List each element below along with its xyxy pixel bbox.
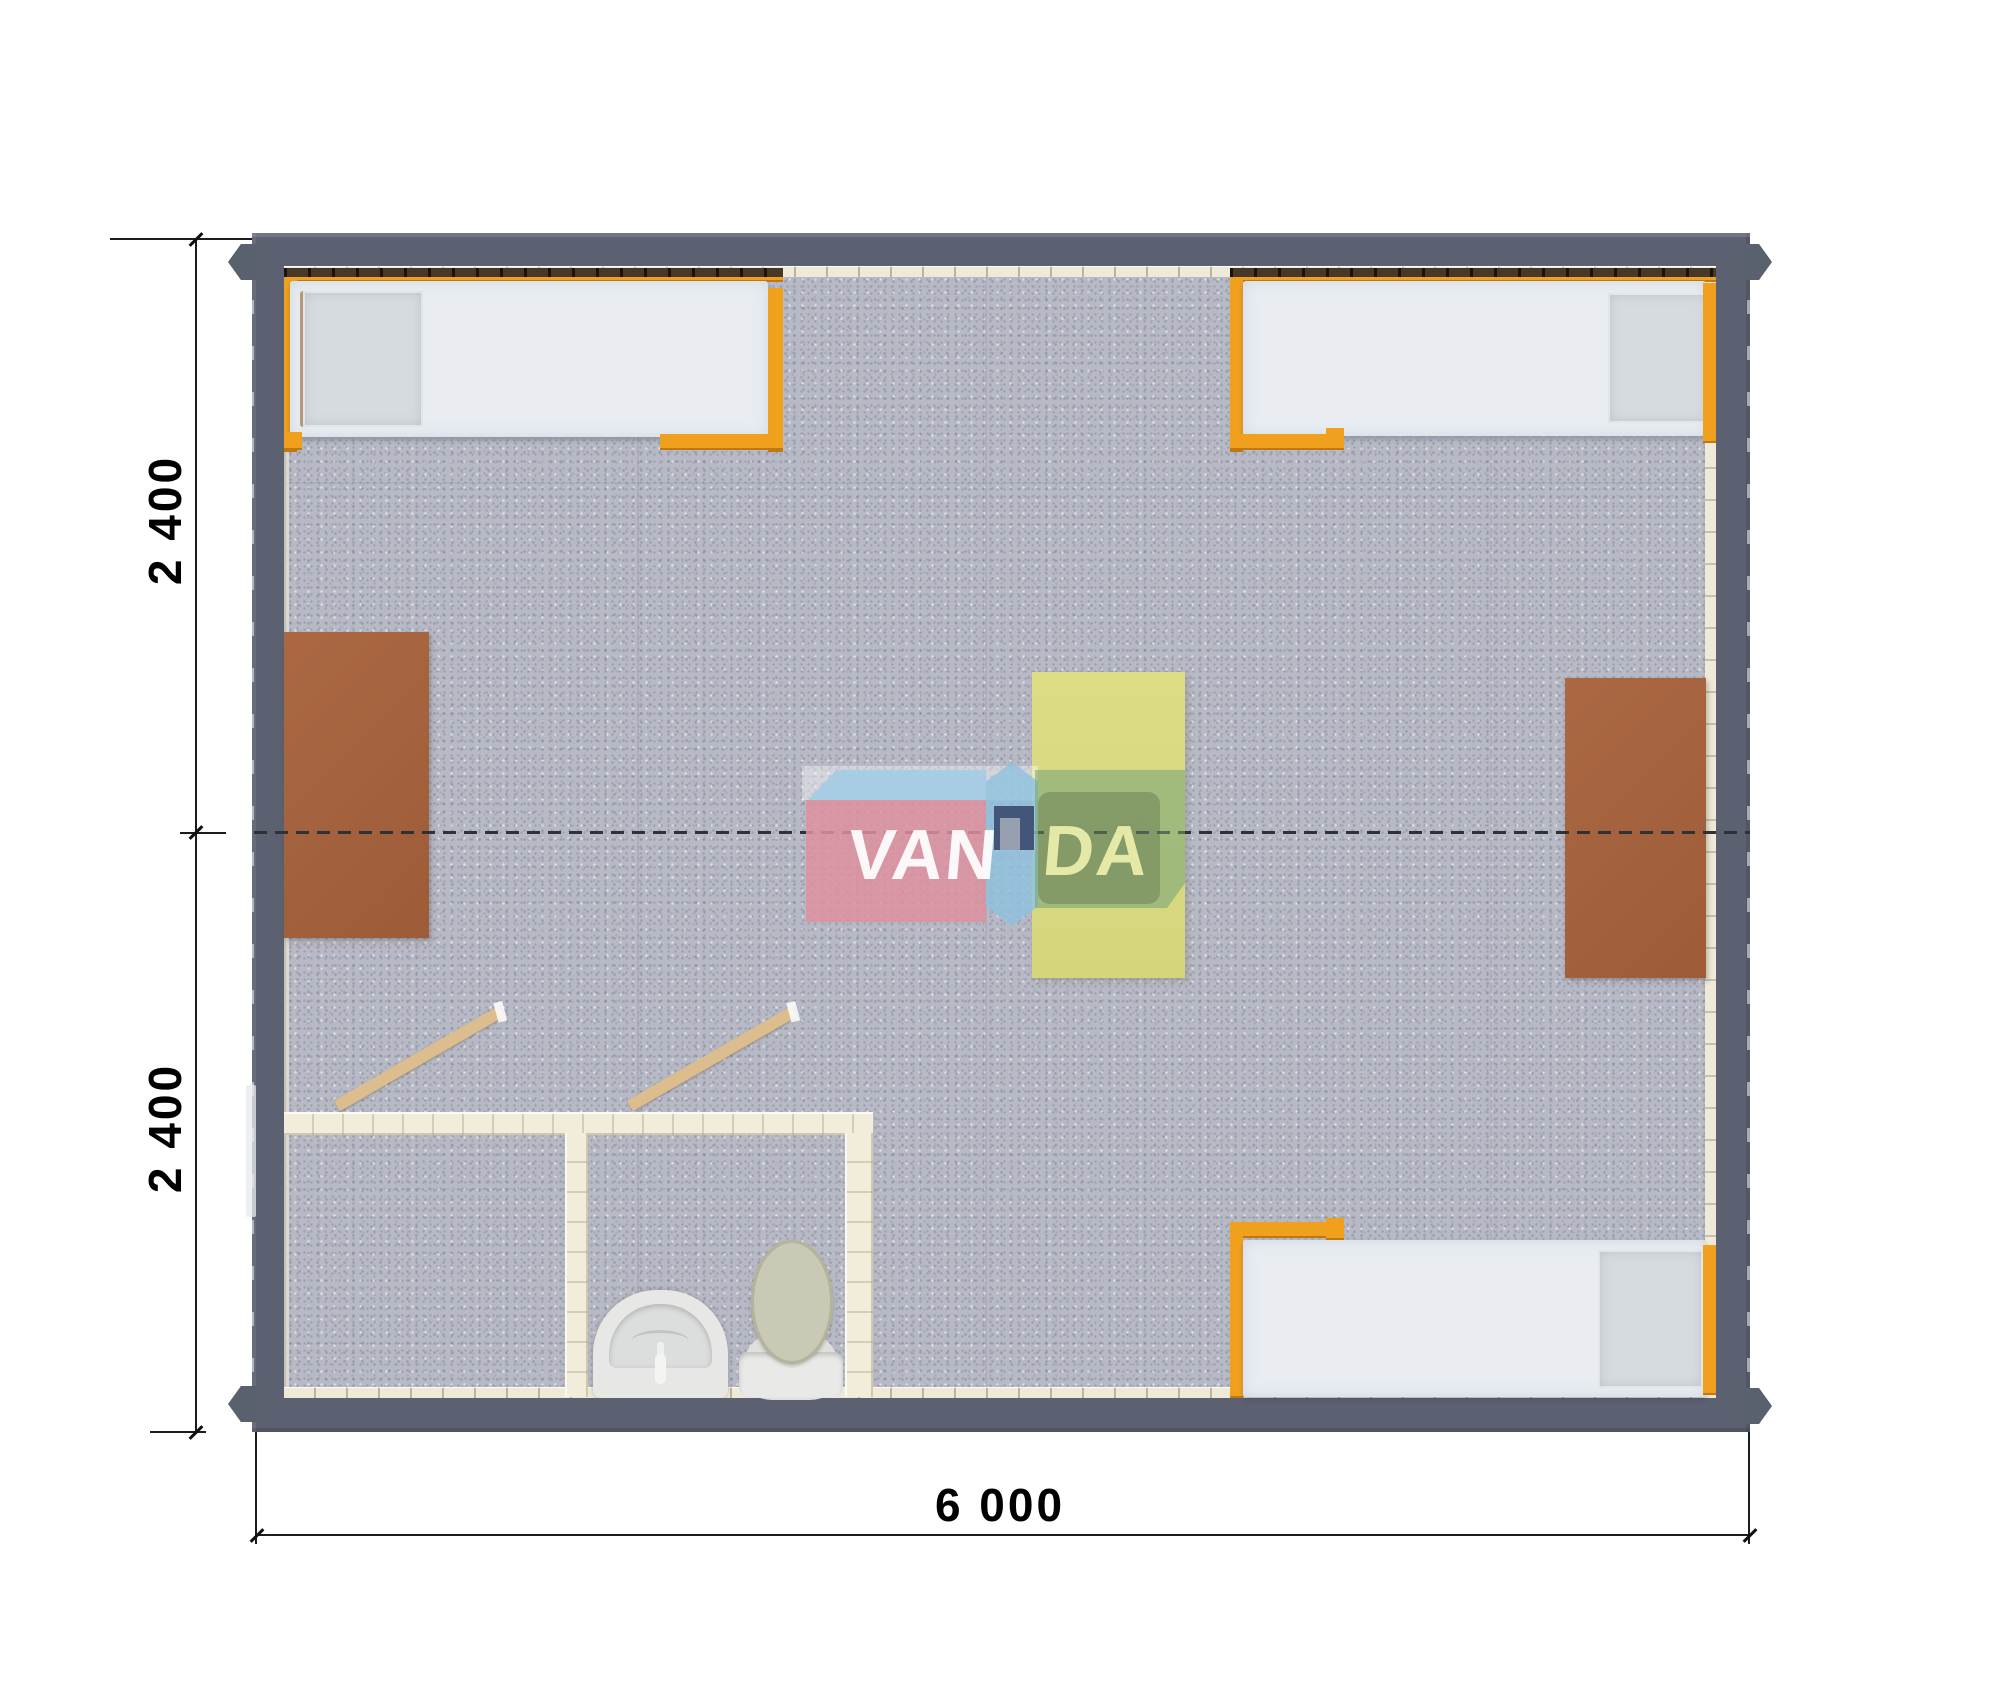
bathroom-wall-top (284, 1112, 873, 1135)
wall-panel-seams-right (1747, 300, 1751, 1380)
module-joint-dashed-line (254, 831, 1750, 834)
extension-line-bottom-left (255, 1432, 257, 1544)
dimension-label-bottom: 6 000 (900, 1478, 1100, 1532)
extension-line-middle (180, 832, 226, 834)
bed-frame-right-rail (768, 288, 783, 452)
bed-pillow (300, 291, 423, 427)
wall-panel-seams-left (250, 300, 254, 1380)
corner-cap-top-right (1738, 244, 1772, 280)
bed-frame-left-rail (1230, 277, 1243, 452)
dimension-line-left (195, 238, 197, 1434)
bed-pillow (1608, 293, 1711, 423)
floor-plan-scene: 2 400 2 400 6 000 (0, 0, 2000, 1701)
desk-right (1565, 678, 1706, 978)
bathroom-wall-right (845, 1133, 873, 1397)
dimension-label-left-top: 2 400 (138, 445, 188, 595)
extension-line-bottom-right (1748, 1427, 1750, 1544)
bed-frame-corner-nub (1326, 428, 1344, 450)
sink-faucet (655, 1354, 666, 1384)
bed-frame-corner-nub (284, 432, 302, 450)
corner-cap-bottom-right (1738, 1388, 1772, 1424)
corner-cap-bottom-left (228, 1386, 262, 1422)
bed-frame-corner-nub (1326, 1218, 1344, 1240)
dimension-label-left-bottom: 2 400 (138, 1053, 188, 1203)
bed-pillow (1598, 1250, 1706, 1388)
sink-detail (631, 1330, 689, 1353)
desk-left (284, 632, 429, 938)
bed-frame-left-rail (1230, 1222, 1243, 1398)
corner-cap-top-left (228, 244, 262, 280)
table-center (1032, 672, 1185, 978)
bed-frame-foot-rail (660, 434, 783, 450)
bathroom-divider-wall (565, 1133, 588, 1397)
dimension-line-bottom (256, 1534, 1750, 1536)
extension-line-top (110, 238, 256, 240)
bed-frame-right-rail (1703, 1245, 1716, 1395)
carpet-seam (286, 482, 1714, 484)
toilet-lid (751, 1240, 833, 1364)
entry-door-marker (246, 1085, 256, 1217)
bed-frame-right-rail (1703, 283, 1716, 443)
carpet-seam (286, 1188, 1714, 1190)
